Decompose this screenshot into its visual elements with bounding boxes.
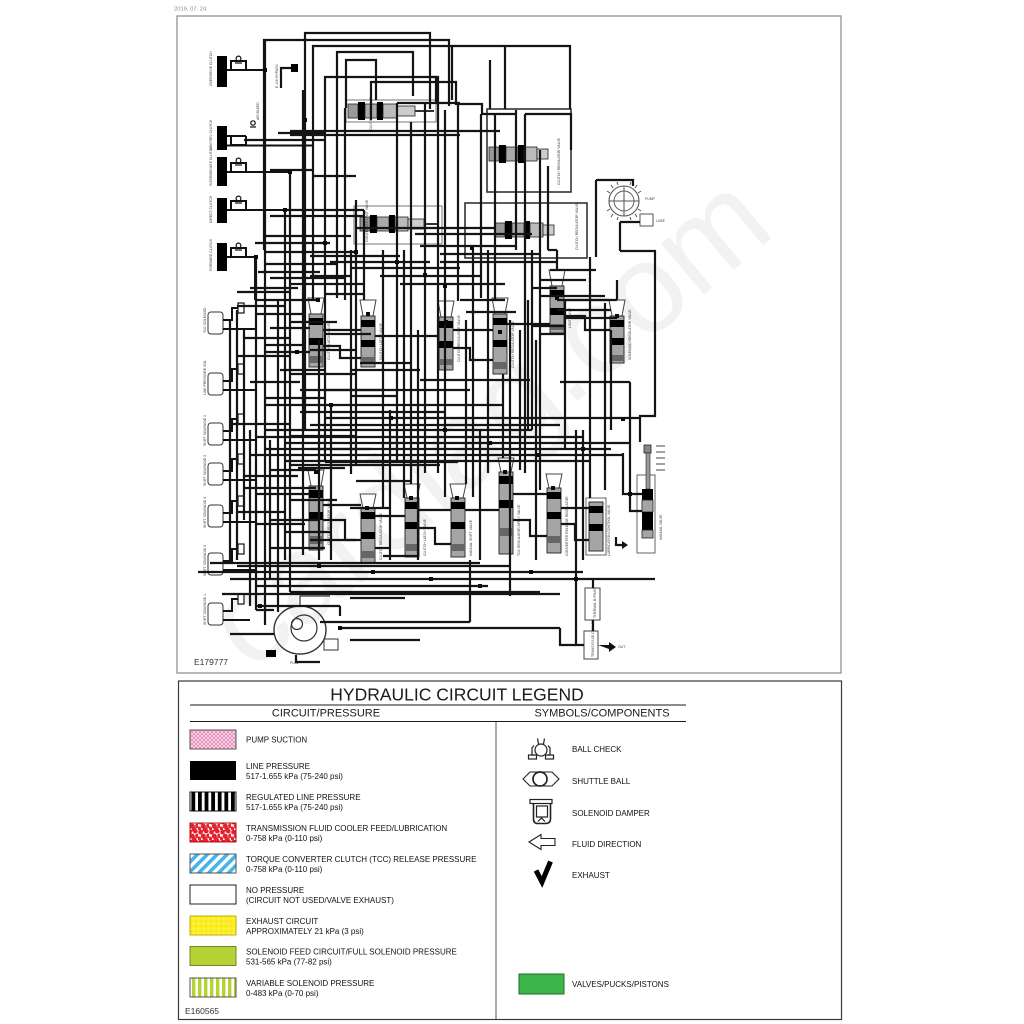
svg-text:SOLENOID FEED CIRCUIT/FULL SOL: SOLENOID FEED CIRCUIT/FULL SOLENOID PRES… <box>246 948 457 957</box>
svg-text:LUBRICATION CONTROL VALVE: LUBRICATION CONTROL VALVE <box>607 504 611 556</box>
svg-text:LINE PRESSURE: LINE PRESSURE <box>246 762 310 771</box>
svg-text:E 10H BYPASS: E 10H BYPASS <box>275 64 279 88</box>
svg-text:LOW REV CLUTCH: LOW REV CLUTCH <box>209 119 213 150</box>
svg-text:VARIABLE SOLENOID PRESSURE: VARIABLE SOLENOID PRESSURE <box>246 979 374 988</box>
svg-text:TCC REGULATOR APPLY VALVE: TCC REGULATOR APPLY VALVE <box>517 504 521 556</box>
svg-text:CLUTCH REGULATOR VALVE: CLUTCH REGULATOR VALVE <box>379 512 383 560</box>
svg-text:531-565 kPa (77-82 psi): 531-565 kPa (77-82 psi) <box>246 958 332 967</box>
svg-text:0-758 kPa (0-110 psi): 0-758 kPa (0-110 psi) <box>246 865 323 874</box>
svg-text:FLUID DIRECTION: FLUID DIRECTION <box>572 840 642 849</box>
svg-text:E179777: E179777 <box>194 657 228 667</box>
svg-text:CONVERTER RELEASE REGULATOR: CONVERTER RELEASE REGULATOR <box>565 496 569 556</box>
svg-text:APPROXIMATELY 21 kPa (3 psi): APPROXIMATELY 21 kPa (3 psi) <box>246 927 364 936</box>
svg-text:INTERMEDIATE CLUTCH: INTERMEDIATE CLUTCH <box>209 146 213 186</box>
svg-text:PUMP SUCTION: PUMP SUCTION <box>246 736 307 745</box>
svg-text:MANUAL VALVE: MANUAL VALVE <box>659 514 663 540</box>
svg-text:CLUTCH REGULATOR VALVE: CLUTCH REGULATOR VALVE <box>457 314 461 362</box>
svg-text:517-1.655 kPa (75-240 psi): 517-1.655 kPa (75-240 psi) <box>246 772 343 781</box>
svg-text:CONVERTER LIMIT VALVE: CONVERTER LIMIT VALVE <box>365 199 369 242</box>
svg-text:LINE PRESSURE SOL: LINE PRESSURE SOL <box>203 360 207 395</box>
svg-text:0-483 kPa (0-70 psi): 0-483 kPa (0-70 psi) <box>246 989 319 998</box>
svg-text:0-758 kPa (0-110 psi): 0-758 kPa (0-110 psi) <box>246 834 323 843</box>
svg-text:TORQUE CONVERTER CLUTCH (TCC): TORQUE CONVERTER CLUTCH (TCC) RELEASE PR… <box>246 855 476 864</box>
svg-text:VALVES/PUCKS/PISTONS: VALVES/PUCKS/PISTONS <box>572 980 669 989</box>
svg-text:SHIFT SOLENOID 1: SHIFT SOLENOID 1 <box>203 594 207 625</box>
svg-text:CLUTCH REGULATOR VALVE: CLUTCH REGULATOR VALVE <box>575 202 579 250</box>
svg-text:CIRCUIT/PRESSURE: CIRCUIT/PRESSURE <box>272 708 380 720</box>
svg-text:BALL CHECK: BALL CHECK <box>572 745 622 754</box>
svg-text:SHIFT SOLENOID 4: SHIFT SOLENOID 4 <box>203 497 207 528</box>
svg-text:AIR BLEED: AIR BLEED <box>256 102 260 120</box>
svg-text:FORWARD CLUTCH: FORWARD CLUTCH <box>209 238 213 271</box>
svg-text:517-1.655 kPa (75-240 psi): 517-1.655 kPa (75-240 psi) <box>246 803 343 812</box>
svg-text:2019. 07. 24: 2019. 07. 24 <box>174 7 207 13</box>
svg-text:CLUTCH REGULATOR VALVE: CLUTCH REGULATOR VALVE <box>557 137 561 185</box>
svg-text:MANUAL SHIFT VALVE: MANUAL SHIFT VALVE <box>469 519 473 556</box>
svg-text:SHIFT SOLENOID 2: SHIFT SOLENOID 2 <box>203 415 207 446</box>
svg-text:THERMAL BYPASS: THERMAL BYPASS <box>593 587 597 618</box>
svg-text:CLUTCH LATCH VALVE: CLUTCH LATCH VALVE <box>423 518 427 556</box>
svg-text:E160565: E160565 <box>185 1006 219 1016</box>
svg-text:OUT: OUT <box>618 645 625 649</box>
svg-text:SHUTTLE BALL: SHUTTLE BALL <box>572 777 631 786</box>
svg-text:REGULATED LINE PRESSURE: REGULATED LINE PRESSURE <box>246 793 361 802</box>
svg-text:TRANSMISSION FLUID COOLER FEED: TRANSMISSION FLUID COOLER FEED/LUBRICATI… <box>246 824 447 833</box>
svg-text:TCC SOLENOID: TCC SOLENOID <box>203 307 207 333</box>
svg-text:LUBE: LUBE <box>656 219 666 223</box>
svg-text:OVERDRIVE CLUTCH: OVERDRIVE CLUTCH <box>209 51 213 86</box>
svg-text:SHIFT SOLENOID 3: SHIFT SOLENOID 3 <box>203 455 207 486</box>
svg-text:HYDRAULIC CIRCUIT LEGEND: HYDRAULIC CIRCUIT LEGEND <box>330 685 583 705</box>
svg-text:CLUTCH LATCH VALVE: CLUTCH LATCH VALVE <box>327 322 331 360</box>
svg-text:SYMBOLS/COMPONENTS: SYMBOLS/COMPONENTS <box>534 708 669 720</box>
svg-text:(CIRCUIT NOT USED/VALVE EXHAUS: (CIRCUIT NOT USED/VALVE EXHAUST) <box>246 896 394 905</box>
svg-text:SOLENOID REGULATOR VALVE: SOLENOID REGULATOR VALVE <box>628 309 632 360</box>
svg-text:DIRECT CLUTCH: DIRECT CLUTCH <box>209 195 213 223</box>
svg-text:NO PRESSURE: NO PRESSURE <box>246 886 304 895</box>
svg-text:EXHAUST: EXHAUST <box>572 871 610 880</box>
svg-text:CLUTCH REGULATOR VALVE: CLUTCH REGULATOR VALVE <box>511 320 515 368</box>
svg-text:EXHAUST CIRCUIT: EXHAUST CIRCUIT <box>246 917 318 926</box>
svg-text:SOLENOID DAMPER: SOLENOID DAMPER <box>572 809 650 818</box>
svg-text:PUMP: PUMP <box>645 197 656 201</box>
